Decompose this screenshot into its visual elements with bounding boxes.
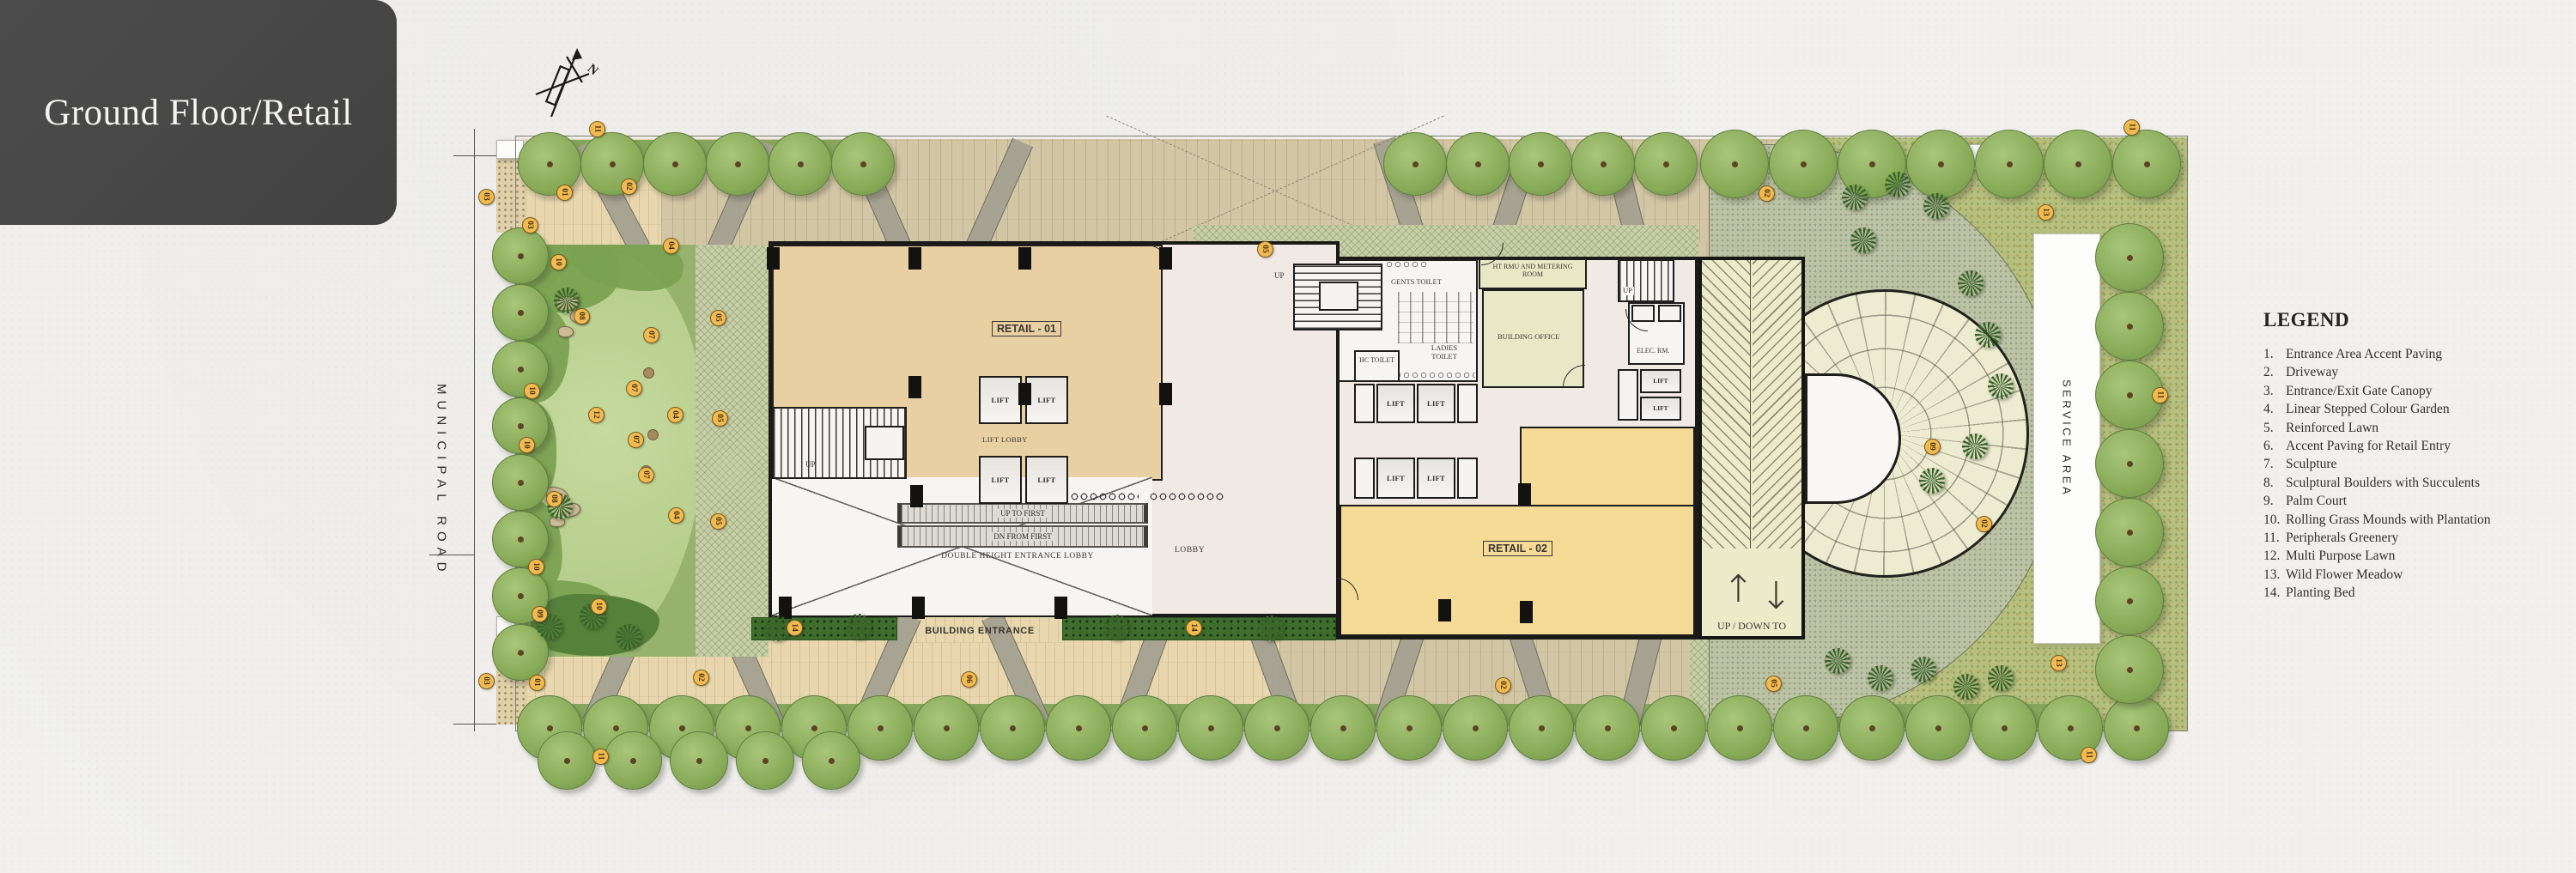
tree-icon bbox=[769, 132, 832, 196]
shrub-icon bbox=[1958, 270, 1984, 296]
tree-icon bbox=[1383, 132, 1447, 196]
legend-item: 14.Planting Bed bbox=[2263, 584, 2550, 602]
marker-05: 05 bbox=[712, 410, 728, 427]
tree-icon bbox=[2112, 130, 2181, 198]
shrub-icon bbox=[1825, 648, 1850, 674]
tree-icon bbox=[2104, 695, 2169, 761]
marker-14: 14 bbox=[1186, 620, 1202, 636]
north-arrow: N bbox=[532, 45, 610, 124]
marker-11: 11 bbox=[2081, 747, 2097, 763]
shrub-icon bbox=[1919, 468, 1945, 494]
tree-icon bbox=[980, 695, 1045, 761]
tree-icon bbox=[492, 454, 549, 511]
marker-07: 07 bbox=[626, 380, 642, 397]
tree-icon bbox=[1773, 695, 1838, 761]
tree-icon bbox=[1178, 695, 1243, 761]
tree-icon bbox=[1509, 695, 1574, 761]
shrub-icon bbox=[1885, 172, 1911, 197]
marker-01: 01 bbox=[529, 675, 545, 691]
shrub-icon bbox=[1988, 373, 2014, 399]
tree-icon bbox=[1906, 130, 1975, 198]
legend-item: 11.Peripherals Greenery bbox=[2263, 529, 2550, 547]
marker-12: 12 bbox=[588, 407, 605, 423]
marker-02: 02 bbox=[1759, 185, 1775, 202]
marker-09: 09 bbox=[1924, 439, 1941, 455]
marker-07: 07 bbox=[643, 327, 659, 343]
tree-icon bbox=[2095, 498, 2164, 567]
shrub-icon bbox=[1975, 322, 2001, 348]
legend-item: 3.Entrance/Exit Gate Canopy bbox=[2263, 382, 2550, 400]
marker-02: 02 bbox=[1495, 677, 1511, 694]
tree-icon bbox=[538, 731, 596, 790]
shrub-icon bbox=[846, 614, 872, 640]
marker-11: 11 bbox=[592, 749, 609, 765]
legend-item: 13.Wild Flower Meadow bbox=[2263, 566, 2550, 584]
tree-icon bbox=[1046, 695, 1111, 761]
tree-icon bbox=[1310, 695, 1376, 761]
legend-title: LEGEND bbox=[2263, 309, 2550, 331]
marker-02: 02 bbox=[693, 670, 709, 686]
marker-03: 03 bbox=[522, 217, 538, 233]
tree-icon bbox=[1571, 132, 1635, 196]
legend-list: 1.Entrance Area Accent Paving2.Driveway3… bbox=[2263, 345, 2550, 603]
municipal-road-line bbox=[474, 129, 475, 731]
tree-icon bbox=[1112, 695, 1177, 761]
tree-icon bbox=[518, 132, 581, 196]
tree-icon bbox=[1575, 695, 1640, 761]
tree-icon bbox=[2095, 223, 2164, 292]
tree-icon bbox=[1376, 695, 1442, 761]
shrub-icon bbox=[1868, 665, 1893, 691]
tree-icon bbox=[914, 695, 979, 761]
marker-03: 03 bbox=[478, 189, 495, 205]
legend: LEGEND 1.Entrance Area Accent Paving2.Dr… bbox=[2263, 309, 2550, 603]
tree-icon bbox=[1971, 695, 2037, 761]
tree-icon bbox=[1707, 695, 1772, 761]
tree-icon bbox=[1443, 695, 1508, 761]
marker-05: 05 bbox=[710, 310, 726, 326]
tree-icon bbox=[1975, 130, 2044, 198]
legend-item: 1.Entrance Area Accent Paving bbox=[2263, 345, 2550, 363]
marker-02: 02 bbox=[621, 179, 637, 195]
tree-icon bbox=[2095, 429, 2164, 498]
shrub-icon bbox=[1103, 615, 1129, 640]
tree-icon bbox=[1634, 132, 1698, 196]
marker-08: 08 bbox=[546, 491, 562, 507]
north-letter: N bbox=[585, 62, 601, 78]
marker-11: 11 bbox=[589, 121, 605, 137]
legend-item: 2.Driveway bbox=[2263, 363, 2550, 381]
site-boundary bbox=[515, 136, 2188, 731]
legend-item: 8.Sculptural Boulders with Succulents bbox=[2263, 474, 2550, 492]
tree-icon bbox=[2044, 130, 2112, 198]
tree-icon bbox=[492, 341, 549, 397]
marker-06: 06 bbox=[961, 671, 977, 688]
marker-08: 08 bbox=[574, 308, 590, 324]
marker-10: 10 bbox=[528, 559, 544, 575]
shrub-icon bbox=[1923, 193, 1949, 219]
page-title: Ground Floor/Retail bbox=[44, 92, 352, 134]
tree-icon bbox=[1509, 132, 1572, 196]
marker-04: 04 bbox=[668, 507, 684, 524]
tree-icon bbox=[604, 731, 662, 790]
shrub-icon bbox=[1988, 665, 2014, 691]
tree-icon bbox=[1905, 695, 1971, 761]
shrub-icon bbox=[1911, 657, 1936, 682]
tree-icon bbox=[492, 511, 549, 567]
tree-icon bbox=[492, 284, 549, 341]
marker-10: 10 bbox=[524, 383, 540, 399]
marker-07: 07 bbox=[628, 432, 644, 448]
marker-05: 05 bbox=[1257, 241, 1273, 258]
marker-10: 10 bbox=[519, 437, 535, 453]
marker-04: 04 bbox=[663, 238, 679, 254]
tree-icon bbox=[1700, 130, 1769, 198]
legend-item: 7.Sculpture bbox=[2263, 455, 2550, 473]
tree-icon bbox=[802, 731, 860, 790]
shrub-icon bbox=[616, 624, 641, 650]
tree-icon bbox=[492, 227, 549, 284]
marker-13: 13 bbox=[2038, 204, 2054, 221]
tree-icon bbox=[1446, 132, 1510, 196]
marker-14: 14 bbox=[787, 620, 803, 636]
tree-icon bbox=[1244, 695, 1309, 761]
tree-icon bbox=[1641, 695, 1706, 761]
marker-01: 01 bbox=[556, 185, 573, 201]
legend-item: 5.Reinforced Lawn bbox=[2263, 419, 2550, 437]
tree-icon bbox=[1769, 130, 1838, 198]
shrub-icon bbox=[1842, 185, 1868, 210]
marker-11: 11 bbox=[2123, 119, 2140, 136]
tree-icon bbox=[643, 132, 707, 196]
shrub-icon bbox=[1953, 674, 1979, 700]
shrub-icon bbox=[1962, 433, 1988, 459]
marker-05: 05 bbox=[710, 513, 726, 530]
shrub-icon bbox=[1850, 227, 1876, 253]
marker-10: 10 bbox=[591, 598, 607, 615]
marker-05: 05 bbox=[1765, 676, 1782, 692]
marker-13: 13 bbox=[2050, 655, 2067, 671]
marker-09: 09 bbox=[532, 606, 548, 622]
tree-icon bbox=[670, 731, 728, 790]
floor-plan-sheet: RETAIL - 01 DOUBLE HEIGHT ENTRANCE LOBBY… bbox=[0, 0, 2576, 873]
tree-icon bbox=[2095, 567, 2164, 635]
floor-title-card: Ground Floor/Retail bbox=[0, 0, 397, 225]
legend-item: 10.Rolling Grass Mounds with Plantation bbox=[2263, 511, 2550, 529]
tree-icon bbox=[736, 731, 794, 790]
marker-11: 11 bbox=[2152, 387, 2168, 403]
legend-item: 6.Accent Paving for Retail Entry bbox=[2263, 437, 2550, 455]
marker-04: 04 bbox=[667, 407, 683, 423]
marker-03: 03 bbox=[478, 673, 495, 689]
legend-item: 4.Linear Stepped Colour Garden bbox=[2263, 400, 2550, 418]
municipal-road-label: MUNICIPAL ROAD bbox=[427, 363, 456, 598]
tree-icon bbox=[2095, 635, 2164, 704]
tree-icon bbox=[2095, 292, 2164, 361]
marker-02: 02 bbox=[1976, 516, 1992, 532]
legend-item: 12.Multi Purpose Lawn bbox=[2263, 547, 2550, 565]
marker-10: 10 bbox=[550, 254, 567, 270]
tree-icon bbox=[831, 132, 895, 196]
marker-07: 07 bbox=[638, 467, 654, 483]
tree-icon bbox=[706, 132, 769, 196]
shrub-icon bbox=[1258, 615, 1284, 641]
legend-item: 9.Palm Court bbox=[2263, 492, 2550, 510]
tree-icon bbox=[1839, 695, 1905, 761]
